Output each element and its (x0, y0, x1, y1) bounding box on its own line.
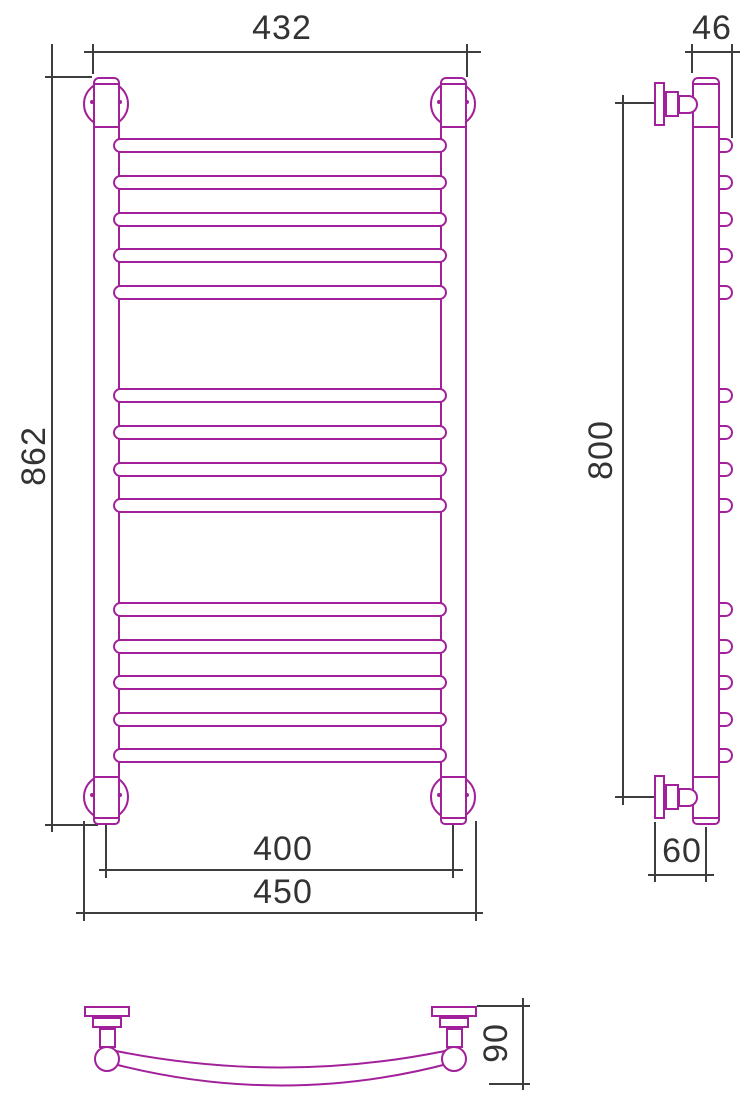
front-rung (113, 425, 447, 440)
dim-60-label: 60 (632, 834, 732, 868)
post-cap-line (694, 83, 718, 85)
bracket-center-mark (118, 793, 122, 797)
bracket-center-mark (465, 793, 469, 797)
bracket-neck-top (678, 95, 698, 114)
bracket-center-mark (90, 793, 94, 797)
dim-800-label: 800 (582, 400, 620, 500)
bracket-center-mark (118, 100, 122, 104)
front-rung (113, 388, 447, 403)
wall-flange-bottom (654, 775, 665, 819)
wall-flange-top (654, 82, 665, 126)
bracket-nut-left (92, 1017, 122, 1028)
front-rung (113, 712, 447, 727)
front-rung (113, 138, 447, 153)
post-cap-line (694, 817, 718, 819)
bracket-center-mark (437, 793, 441, 797)
post-cap-line (95, 817, 118, 819)
post-section-line (692, 776, 720, 778)
front-rung (113, 248, 447, 263)
bracket-neck-left (99, 1028, 116, 1048)
post-section-line (93, 126, 120, 128)
front-rung (113, 639, 447, 654)
front-rung (113, 175, 447, 190)
wall-flange-right (431, 1006, 477, 1017)
front-rung (113, 748, 447, 763)
front-rung (113, 498, 447, 513)
bracket-nut-bottom (665, 784, 679, 810)
post-section-line (692, 126, 720, 128)
front-rung (113, 212, 447, 227)
front-rung (113, 462, 447, 477)
dim-432-label: 432 (232, 9, 332, 47)
drawing-canvas: 432 862 400 450 46 800 60 (0, 0, 750, 1103)
dim-90-label: 90 (477, 993, 515, 1093)
dim-862-label: 862 (15, 406, 53, 506)
bracket-center-mark (465, 100, 469, 104)
side-post (692, 77, 720, 825)
dim-450-label: 450 (233, 875, 333, 909)
post-section-right (441, 1046, 467, 1072)
post-cap-line (442, 83, 465, 85)
bracket-nut-top (665, 91, 679, 117)
bracket-center-mark (437, 100, 441, 104)
front-rung (113, 602, 447, 617)
post-section-line (440, 126, 467, 128)
post-section-line (440, 776, 467, 778)
post-cap-line (95, 83, 118, 85)
dim-400-label: 400 (233, 832, 333, 866)
bracket-neck-bottom (678, 788, 698, 807)
post-section-line (93, 776, 120, 778)
post-section-left (94, 1046, 120, 1072)
front-rung (113, 285, 447, 300)
dim-46-label: 46 (662, 9, 750, 47)
front-rung (113, 675, 447, 690)
post-cap-line (442, 817, 465, 819)
bracket-nut-right (439, 1017, 469, 1028)
wall-flange-left (84, 1006, 130, 1017)
bracket-neck-right (446, 1028, 463, 1048)
bracket-center-mark (90, 100, 94, 104)
